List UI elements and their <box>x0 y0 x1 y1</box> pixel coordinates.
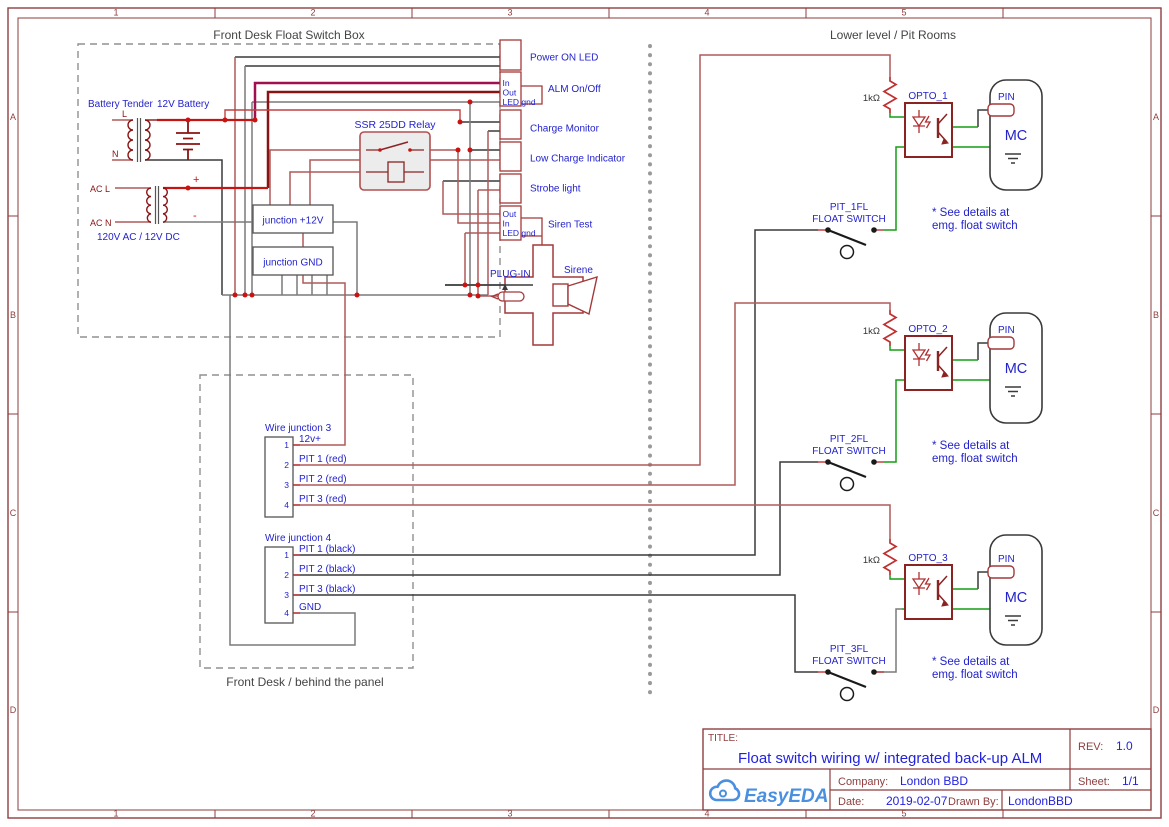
wj3-pin-num: 4 <box>284 500 289 510</box>
sheet-label: Sheet: <box>1078 776 1110 788</box>
battery-tender-transformer <box>128 118 157 162</box>
schematic-page: 1 2 3 4 5 1 2 3 4 5 A B C D A B C D Fron… <box>0 0 1169 827</box>
plug-connector-icon <box>498 292 524 301</box>
wire-junction4-title: Wire junction 4 <box>265 533 332 544</box>
resistor-1k <box>884 310 896 346</box>
wj4-pin-label: PIT 2 (black) <box>299 564 356 575</box>
wj3-pin-label: PIT 2 (red) <box>299 474 347 485</box>
wj3-pin-num: 2 <box>284 460 289 470</box>
opto-transistor-symbols <box>938 114 948 606</box>
opto-name: OPTO_1 <box>908 91 948 102</box>
note-line1: * See details at <box>932 656 1010 668</box>
note-line1: * See details at <box>932 440 1010 452</box>
float-switch-1 <box>825 227 877 258</box>
connector-charge <box>500 110 521 139</box>
converter-label: 120V AC / 12V DC <box>97 232 180 243</box>
wj3-pin-label: PIT 1 (red) <box>299 454 347 465</box>
siren-horn-base <box>553 284 568 306</box>
wj3-pin-label: PIT 3 (red) <box>299 494 347 505</box>
connector-strobe <box>500 174 521 203</box>
resistor-label: 1kΩ <box>863 555 880 566</box>
pin-l-label: L <box>122 109 127 119</box>
pin-1-box <box>988 104 1014 116</box>
frame-row-label: A <box>1153 112 1159 122</box>
switch-type: FLOAT SWITCH <box>812 214 886 225</box>
junction-12v-label: junction +12V <box>262 216 324 227</box>
connector-low-charge <box>500 142 521 171</box>
float-switch-2 <box>825 459 877 490</box>
opto-name: OPTO_2 <box>908 324 948 335</box>
ssr-relay-label: SSR 25DD Relay <box>354 119 436 131</box>
pin-2-box <box>988 337 1014 349</box>
frame-row-label: C <box>1153 508 1160 518</box>
frame-col-label: 3 <box>507 809 512 819</box>
note-line2: emg. float switch <box>932 669 1018 681</box>
wj3-pin-num: 3 <box>284 480 289 490</box>
frame-col-label: 3 <box>507 8 512 18</box>
switch-name: PIT_3FL <box>830 644 869 655</box>
resistor-label: 1kΩ <box>863 326 880 337</box>
rev-value: 1.0 <box>1116 739 1133 753</box>
sirene-label: Sirene <box>564 265 593 276</box>
frame-row-label: B <box>10 310 16 320</box>
behind-panel-title: Front Desk / behind the panel <box>226 675 383 689</box>
opto-1-box <box>905 103 952 157</box>
float-switches <box>825 227 877 700</box>
sheet-title: Float switch wiring w/ integrated back-u… <box>738 750 1042 767</box>
note-line2: emg. float switch <box>932 220 1018 232</box>
siren-pin-out: Out <box>503 209 517 219</box>
ssr-relay <box>360 132 430 190</box>
title-label: TITLE: <box>708 733 738 744</box>
wire-junction3-title: Wire junction 3 <box>265 423 332 434</box>
siren-pin-in: In <box>503 219 510 229</box>
low-charge-label: Low Charge Indicator <box>530 154 626 165</box>
alm-pin-in: In <box>503 78 510 88</box>
wiring <box>112 55 1013 672</box>
company-value: London BBD <box>900 774 968 788</box>
plug-in-label: PLUG-IN <box>490 269 531 280</box>
date-label: Date: <box>838 796 864 808</box>
alm-pin-out: Out <box>503 88 517 98</box>
float-switch-3 <box>825 669 877 700</box>
charge-label: Charge Monitor <box>530 124 600 135</box>
resistors <box>884 77 896 575</box>
company-label: Company: <box>838 776 888 788</box>
frame-col-label: 1 <box>113 809 118 819</box>
ac-l-label: AC L <box>90 184 110 194</box>
opto-led-symbols <box>913 110 930 595</box>
siren-pin-gnd: LED gnd <box>503 228 536 238</box>
pin-label: PIN <box>998 92 1015 103</box>
strobe-label: Strobe light <box>530 184 581 195</box>
wj4-pin-label: PIT 3 (black) <box>299 584 356 595</box>
note-line1: * See details at <box>932 207 1010 219</box>
frame-col-label: 5 <box>901 8 906 18</box>
switch-type: FLOAT SWITCH <box>812 656 886 667</box>
opto-name: OPTO_3 <box>908 553 948 564</box>
frame-col-label: 2 <box>310 8 315 18</box>
pin-3-box <box>988 566 1014 578</box>
ac-n-label: AC N <box>90 218 112 228</box>
frame-row-label: A <box>10 112 16 122</box>
easyeda-logo-text: EasyEDA <box>744 786 829 807</box>
sheet-value: 1/1 <box>1122 774 1139 788</box>
front-desk-box <box>78 44 500 337</box>
switch-name: PIT_1FL <box>830 202 869 213</box>
alm-pin-gnd: LED gnd <box>503 97 536 107</box>
note-line2: emg. float switch <box>932 453 1018 465</box>
behind-panel-box <box>200 375 413 668</box>
mc-label: MC <box>1005 128 1028 144</box>
power-on-led-label: Power ON LED <box>530 53 598 64</box>
wj4-pin-num: 2 <box>284 570 289 580</box>
mc-label: MC <box>1005 361 1028 377</box>
frame-row-label: C <box>10 508 17 518</box>
frame-row-label: D <box>1153 705 1160 715</box>
battery-label: 12V Battery <box>157 99 209 110</box>
title-block: TITLE: Float switch wiring w/ integrated… <box>703 729 1151 810</box>
opto-2-box <box>905 336 952 390</box>
siren-test-label: Siren Test <box>548 220 593 231</box>
wj4-pin-num: 4 <box>284 608 289 618</box>
rev-label: REV: <box>1078 741 1103 753</box>
wj4-pin-label: PIT 1 (black) <box>299 544 356 555</box>
battery-tender-label: Battery Tender <box>88 99 154 110</box>
junction-gnd-label: junction GND <box>262 258 322 269</box>
wj4-pin-num: 3 <box>284 590 289 600</box>
date-value: 2019-02-07 <box>886 794 948 808</box>
drawn-by-value: LondonBBD <box>1008 794 1073 808</box>
schematic-canvas: 1 2 3 4 5 1 2 3 4 5 A B C D A B C D Fron… <box>0 0 1169 827</box>
connector-power-on <box>500 40 521 70</box>
switch-name: PIT_2FL <box>830 434 869 445</box>
alm-label: ALM On/Off <box>548 84 601 95</box>
front-desk-title: Front Desk Float Switch Box <box>213 28 364 42</box>
opto-circuits <box>825 80 1042 701</box>
wj3-pin-label: 12v+ <box>299 434 321 445</box>
opto-3-box <box>905 565 952 619</box>
minus-label: - <box>193 210 197 222</box>
drawn-by-label: Drawn By: <box>948 796 999 808</box>
lower-level-title: Lower level / Pit Rooms <box>830 28 956 42</box>
switch-type: FLOAT SWITCH <box>812 446 886 457</box>
plus-label: + <box>193 174 199 186</box>
wj4-pin-label: GND <box>299 602 321 613</box>
pin-n-label: N <box>112 149 119 159</box>
pin-label: PIN <box>998 554 1015 565</box>
frame-col-label: 2 <box>310 809 315 819</box>
resistor-1k <box>884 539 896 575</box>
frame-col-label: 1 <box>113 8 118 18</box>
battery-symbol <box>176 120 200 160</box>
frame-row-label: D <box>10 705 17 715</box>
wj3-pin-num: 1 <box>284 440 289 450</box>
resistor-label: 1kΩ <box>863 93 880 104</box>
ac-transformer <box>147 186 168 224</box>
mc-label: MC <box>1005 590 1028 606</box>
frame-row-label: B <box>1153 310 1159 320</box>
wj4-pin-num: 1 <box>284 550 289 560</box>
pin-label: PIN <box>998 325 1015 336</box>
resistor-1k <box>884 77 896 113</box>
frame-col-label: 4 <box>704 8 709 18</box>
